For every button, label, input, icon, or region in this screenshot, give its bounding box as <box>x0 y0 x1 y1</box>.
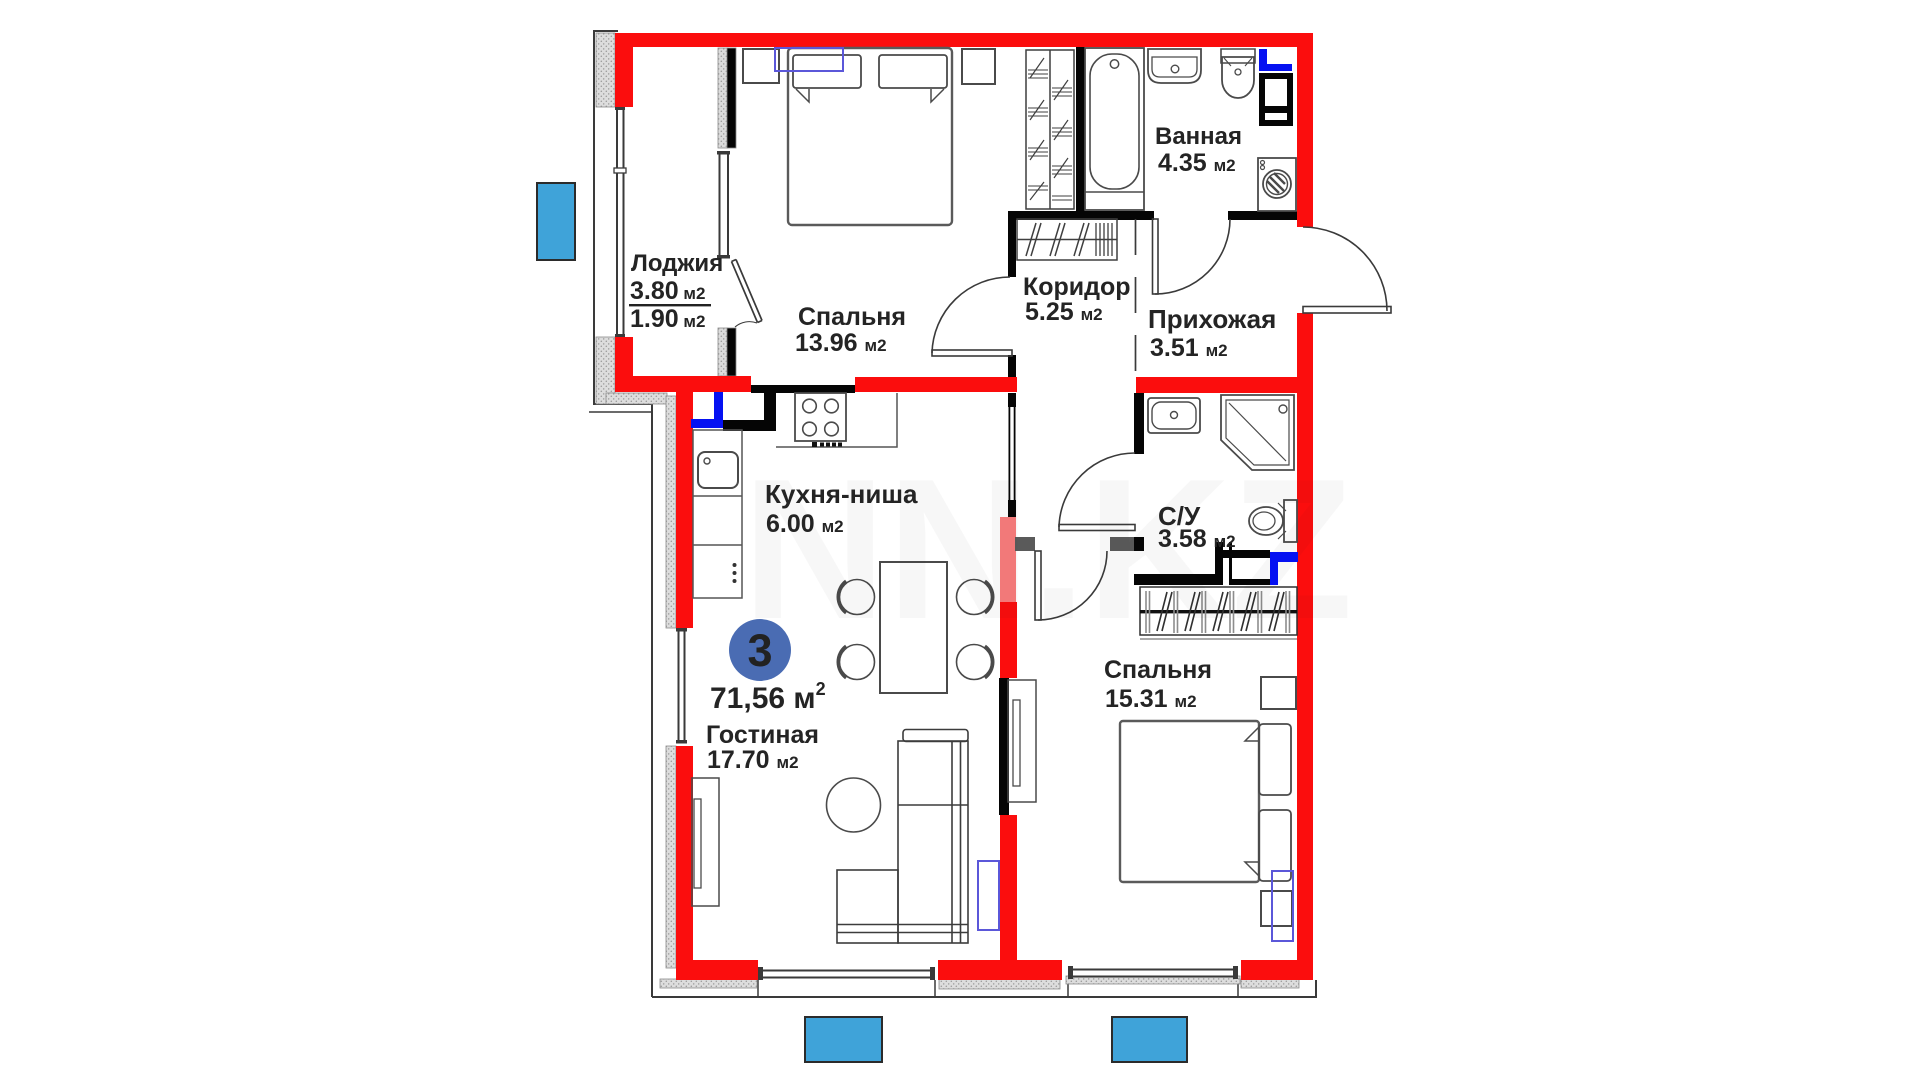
svg-text:Лоджия: Лоджия <box>631 250 723 277</box>
svg-text:Кухня-ниша: Кухня-ниша <box>765 479 918 509</box>
svg-text:Спальня: Спальня <box>798 303 906 331</box>
svg-text:3: 3 <box>747 625 772 676</box>
svg-text:Прихожая: Прихожая <box>1148 304 1276 334</box>
svg-text:Коридор: Коридор <box>1023 273 1131 301</box>
svg-text:71,56 м2: 71,56 м2 <box>710 679 826 715</box>
svg-text:NN.KZ: NN.KZ <box>742 438 1353 661</box>
svg-text:Ванная: Ванная <box>1155 123 1242 150</box>
svg-text:Спальня: Спальня <box>1104 656 1212 684</box>
svg-text:Гостиная: Гостиная <box>706 721 819 749</box>
